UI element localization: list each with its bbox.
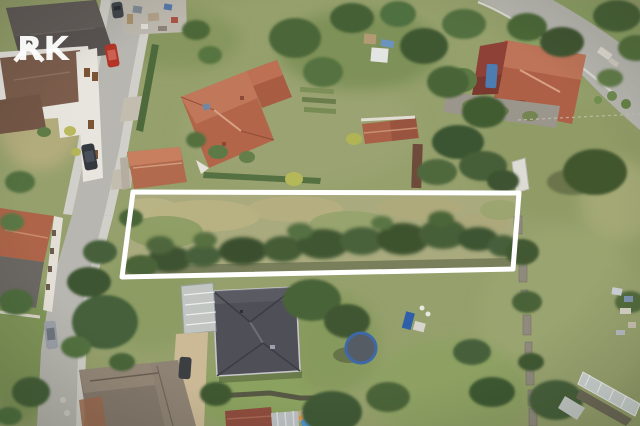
rk-logo: RK: [15, 29, 70, 68]
aerial-photo: RK: [0, 0, 640, 426]
vignette: [0, 0, 640, 426]
logo-text: RK: [17, 29, 70, 68]
aerial-photo-canvas: RK: [0, 0, 640, 426]
